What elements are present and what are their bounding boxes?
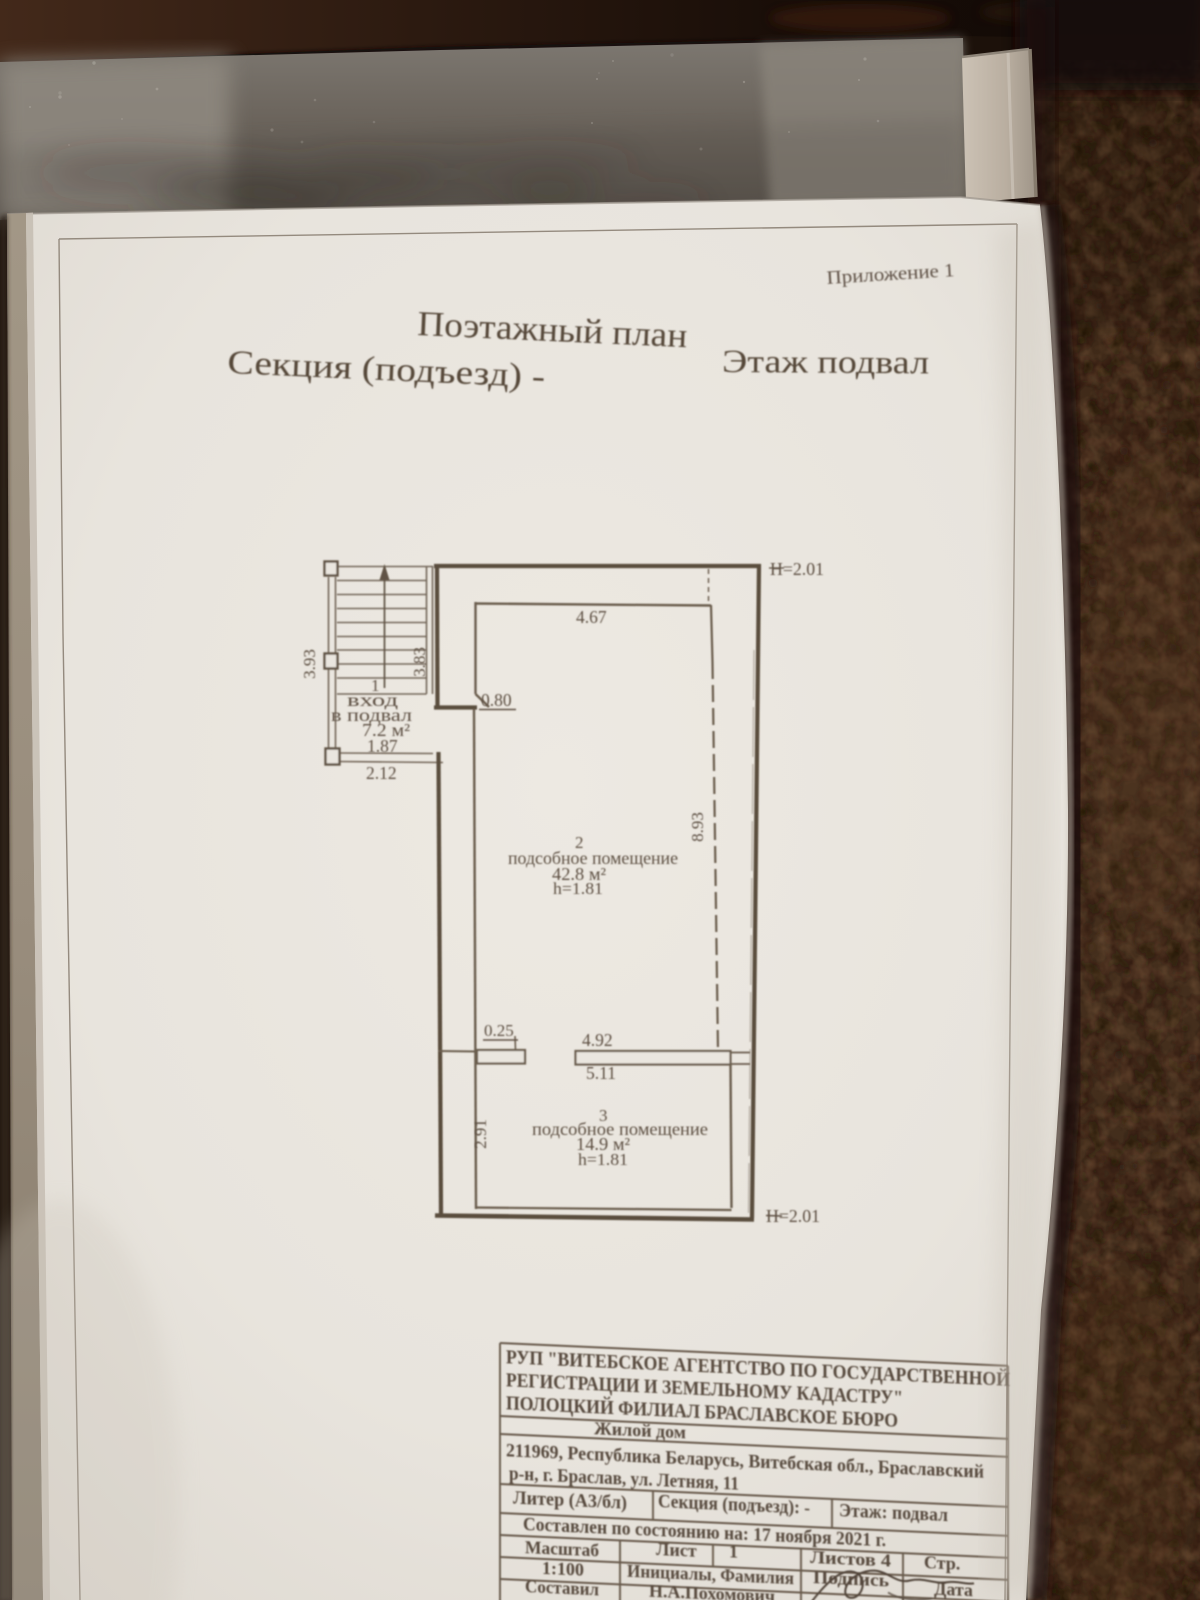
svg-text:8.93: 8.93: [688, 812, 707, 842]
svg-text:h=1.81: h=1.81: [553, 879, 603, 898]
svg-text:Жилой дом: Жилой дом: [594, 1418, 686, 1442]
svg-text:2.91: 2.91: [471, 1119, 490, 1149]
svg-text:Составил: Составил: [525, 1576, 599, 1599]
svg-text:Этаж подвал: Этаж подвал: [722, 344, 929, 381]
svg-text:0.80: 0.80: [481, 690, 512, 710]
svg-text:h=1.81: h=1.81: [578, 1150, 628, 1169]
svg-text:4.92: 4.92: [582, 1030, 613, 1050]
svg-text:Стр.: Стр.: [924, 1552, 960, 1574]
svg-text:Масштаб: Масштаб: [525, 1537, 599, 1560]
svg-text:3.83: 3.83: [410, 647, 429, 677]
svg-text:5.11: 5.11: [586, 1063, 616, 1083]
svg-text:2.12: 2.12: [366, 763, 397, 783]
svg-text:1: 1: [729, 1541, 738, 1561]
svg-text:0.25: 0.25: [484, 1021, 514, 1040]
svg-text:4.67: 4.67: [576, 607, 607, 627]
svg-text:Н=2.01: Н=2.01: [770, 559, 824, 579]
svg-text:3.93: 3.93: [300, 649, 319, 679]
svg-text:Лист: Лист: [656, 1539, 697, 1561]
svg-text:1.87: 1.87: [367, 736, 398, 756]
